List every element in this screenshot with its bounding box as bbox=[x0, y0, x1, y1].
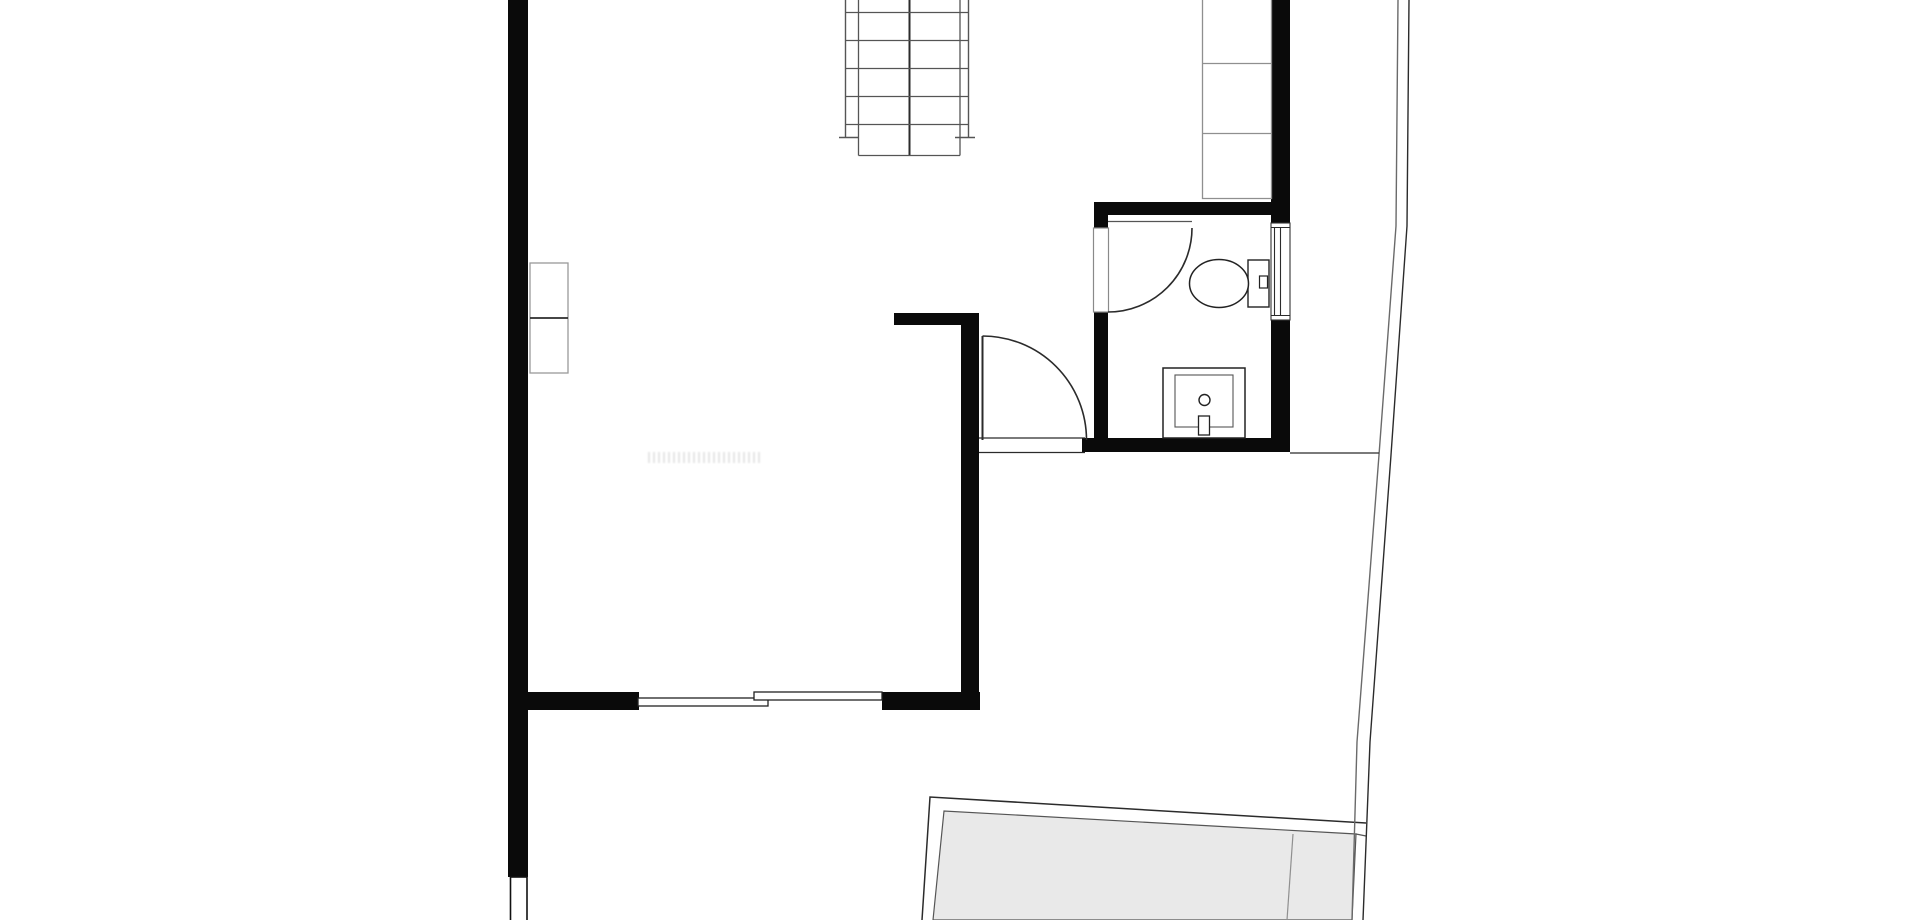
door-swing-arc bbox=[983, 336, 1087, 440]
wall-bathroom-left-lower bbox=[1094, 312, 1108, 452]
floor-plan-page bbox=[0, 0, 1920, 920]
sliding-patio-door bbox=[638, 692, 882, 706]
toilet-icon bbox=[1190, 260, 1270, 308]
boundary-line-inner bbox=[1363, 0, 1409, 920]
toilet-bowl bbox=[1190, 260, 1249, 308]
terrace-paved-area bbox=[933, 811, 1356, 920]
wall-bottom-left-of-slider bbox=[527, 692, 639, 710]
floor-plan-drawing bbox=[0, 0, 1920, 920]
basin-drain bbox=[1199, 416, 1210, 435]
terrace-inner-edge-extension bbox=[1356, 834, 1366, 836]
basin-faucet bbox=[1199, 395, 1210, 406]
door-jamb-opening bbox=[1094, 228, 1109, 312]
toilet-flush-button bbox=[1260, 276, 1268, 288]
staircase bbox=[839, 0, 975, 156]
wall-right-upper bbox=[1271, 0, 1290, 223]
wall-left-exterior bbox=[508, 0, 528, 877]
walls bbox=[508, 0, 1290, 920]
wall-right-lower bbox=[1271, 320, 1290, 452]
stair-treads bbox=[846, 13, 969, 156]
wall-left-thin-lower-stub bbox=[511, 877, 528, 920]
terrace bbox=[922, 797, 1366, 920]
bathroom-door bbox=[1094, 222, 1193, 313]
wall-bathroom-bottom bbox=[1082, 438, 1290, 452]
wall-bathroom-top bbox=[1094, 202, 1290, 215]
closet-outline bbox=[1203, 0, 1272, 199]
wall-stub-horizontal bbox=[894, 313, 979, 325]
property-boundary bbox=[1352, 0, 1409, 920]
slider-panel-outer bbox=[754, 692, 882, 700]
door-swing-arc bbox=[1108, 228, 1192, 312]
wall-hall-vertical bbox=[961, 313, 979, 710]
washbasin-icon bbox=[1163, 368, 1245, 438]
bathroom-window bbox=[1271, 223, 1290, 320]
closet-top-right bbox=[1203, 0, 1272, 199]
slider-panel-inner bbox=[638, 698, 768, 706]
hallway-door bbox=[979, 336, 1087, 453]
wall-cabinet-left bbox=[530, 263, 568, 373]
